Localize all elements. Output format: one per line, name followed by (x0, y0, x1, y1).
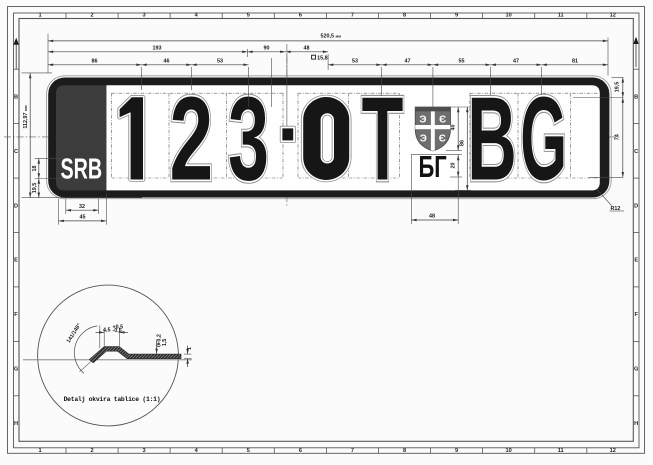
svg-text:+0,2: +0,2 (157, 334, 163, 345)
svg-text:H: H (634, 421, 638, 427)
svg-text:5: 5 (247, 448, 250, 454)
svg-text:1: 1 (38, 448, 41, 454)
svg-text:Є: Є (439, 134, 446, 145)
svg-text:2: 2 (91, 448, 94, 454)
svg-text:C: C (634, 149, 638, 155)
svg-text:15,8: 15,8 (317, 55, 328, 61)
svg-text:86: 86 (460, 140, 466, 146)
svg-text:Э: Э (419, 114, 426, 125)
svg-text:12: 12 (610, 12, 616, 18)
svg-text:47: 47 (405, 58, 411, 64)
svg-text:D: D (634, 203, 638, 209)
svg-text:8: 8 (403, 448, 406, 454)
svg-text:81: 81 (572, 58, 578, 64)
svg-text:5: 5 (247, 12, 250, 18)
svg-text:E: E (634, 258, 638, 264)
svg-text:E: E (14, 258, 18, 264)
svg-text:4,5: 4,5 (103, 327, 111, 333)
svg-text:1: 1 (38, 12, 41, 18)
svg-text:Є: Є (439, 114, 446, 125)
svg-text:D: D (14, 203, 18, 209)
svg-text:2: 2 (169, 73, 213, 205)
svg-text:H: H (14, 421, 18, 427)
svg-text:7: 7 (351, 448, 354, 454)
svg-text:B: B (467, 72, 516, 206)
svg-text:10: 10 (505, 448, 511, 454)
svg-text:B: B (14, 94, 18, 100)
svg-text:6: 6 (299, 12, 302, 18)
svg-text:1,5: 1,5 (162, 339, 168, 347)
svg-text:F: F (14, 312, 18, 318)
svg-text:3: 3 (143, 448, 146, 454)
svg-text:F: F (634, 312, 638, 318)
svg-text:-0,5: -0,5 (113, 328, 122, 334)
svg-text:8: 8 (403, 12, 406, 18)
svg-text:40: 40 (451, 125, 457, 131)
svg-text:18: 18 (32, 166, 38, 172)
svg-text:11: 11 (558, 12, 564, 18)
svg-text:45: 45 (80, 215, 86, 221)
svg-text:47: 47 (513, 58, 519, 64)
svg-text:12: 12 (610, 448, 616, 454)
svg-text:0: 0 (157, 344, 163, 347)
svg-text:9: 9 (455, 448, 458, 454)
svg-text:20: 20 (451, 163, 457, 169)
svg-text:3: 3 (143, 12, 146, 18)
svg-text:55: 55 (459, 58, 465, 64)
svg-text:11: 11 (558, 448, 564, 454)
svg-text:T: T (362, 72, 404, 206)
svg-text:19,5: 19,5 (614, 82, 620, 93)
svg-text:48: 48 (304, 46, 310, 52)
svg-text:19,5: 19,5 (32, 183, 38, 194)
svg-text:2: 2 (91, 12, 94, 18)
svg-text:Detalj okvira tablice (1:1): Detalj okvira tablice (1:1) (64, 396, 161, 403)
svg-text:7: 7 (351, 12, 354, 18)
svg-text:53: 53 (217, 58, 223, 64)
svg-text:1: 1 (187, 347, 193, 350)
svg-text:9: 9 (455, 12, 458, 18)
svg-text:46: 46 (164, 58, 170, 64)
svg-text:48: 48 (429, 214, 435, 220)
svg-text:193: 193 (153, 46, 162, 52)
svg-text:74: 74 (614, 134, 620, 140)
svg-text:SRB: SRB (60, 154, 102, 186)
svg-text:90: 90 (264, 46, 270, 52)
svg-text:32: 32 (79, 204, 85, 210)
svg-text:G: G (14, 367, 18, 373)
svg-text:86: 86 (92, 58, 98, 64)
svg-text:Э: Э (420, 134, 427, 145)
svg-text:G: G (634, 367, 638, 373)
svg-text:C: C (14, 149, 18, 155)
svg-text:B: B (634, 94, 638, 100)
svg-text:6: 6 (299, 448, 302, 454)
svg-text:G: G (520, 72, 567, 204)
svg-text:53: 53 (352, 58, 358, 64)
svg-text:10: 10 (505, 12, 511, 18)
